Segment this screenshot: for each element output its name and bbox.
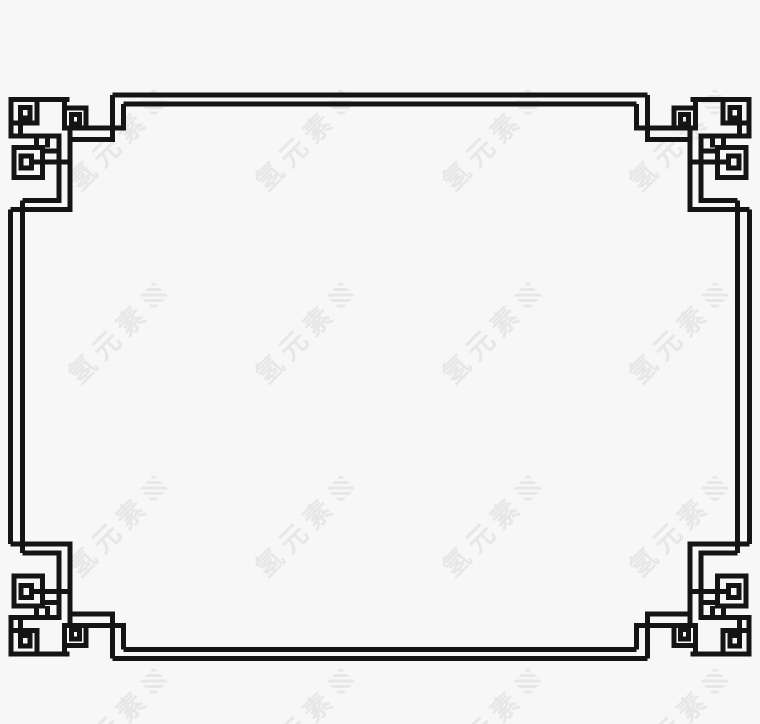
corner-knot-ornament-bottom-right (637, 544, 750, 659)
corner-knot-ornament-bottom-left (11, 544, 124, 659)
frame-border-lines (11, 95, 750, 659)
stock-image-canvas: 氢元素氢元素氢元素氢元素氢元素氢元素氢元素氢元素氢元素氢元素氢元素氢元素氢元素氢… (0, 0, 760, 724)
corner-knot-ornament-top-right (637, 95, 750, 210)
chinese-knot-frame (0, 0, 760, 724)
corner-knot-ornament-top-left (11, 95, 124, 210)
